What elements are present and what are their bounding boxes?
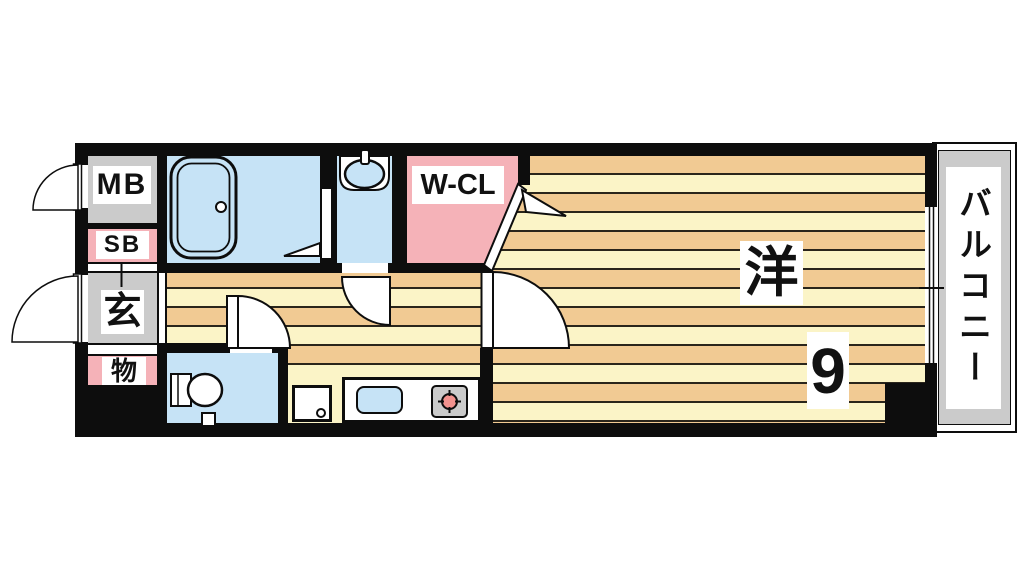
washer-drain-icon [316, 408, 326, 418]
wall-closet-corner [518, 143, 530, 185]
shoe-box-label: SB [96, 231, 149, 259]
washroom-floor [337, 156, 392, 263]
wall-left [75, 143, 88, 165]
entrance-step [88, 262, 157, 273]
balcony-label: バルコニー [948, 170, 998, 406]
walk-in-closet-label: W-CL [412, 166, 504, 204]
wall-mb-sb-divider [88, 223, 157, 229]
washroom-doorway [340, 263, 390, 273]
floor-plan: MB SB 玄 物 W-CL 洋 9 バルコニー [0, 0, 1024, 576]
wall-entrance-column [157, 143, 167, 273]
wall-toilet-right [278, 343, 288, 423]
meter-box-door-leaf [74, 164, 82, 210]
wall-hallway-top [157, 263, 493, 273]
kitchen-sink [356, 386, 403, 414]
wall-bottom [75, 423, 937, 437]
entrance-door-swing [12, 276, 78, 342]
bath-doorway [322, 187, 331, 260]
wall-right [925, 143, 937, 207]
storage-label: 物 [102, 357, 146, 385]
washing-machine-pan [292, 385, 332, 422]
entrance-label: 玄 [101, 290, 144, 334]
toilet-doorway [228, 343, 274, 353]
wall-kitchen-mainroom [480, 348, 493, 423]
balcony-window [925, 207, 937, 363]
meter-box-label: MB [93, 166, 151, 204]
entrance-hall-threshold [157, 273, 167, 343]
toilet-room-floor [167, 353, 278, 423]
room-size-label: 9 [807, 332, 849, 409]
meter-box-door-swing [33, 165, 78, 210]
wall-top [75, 143, 937, 156]
wall-corner-block [75, 385, 167, 437]
entrance-door-leaf [74, 274, 82, 343]
entrance-step [88, 343, 157, 356]
wall-left [75, 208, 88, 275]
western-room-label: 洋 [740, 241, 803, 305]
stove-burner-icon [441, 393, 458, 410]
wall-washroom-closet [392, 156, 407, 263]
bathroom-floor [167, 156, 320, 263]
